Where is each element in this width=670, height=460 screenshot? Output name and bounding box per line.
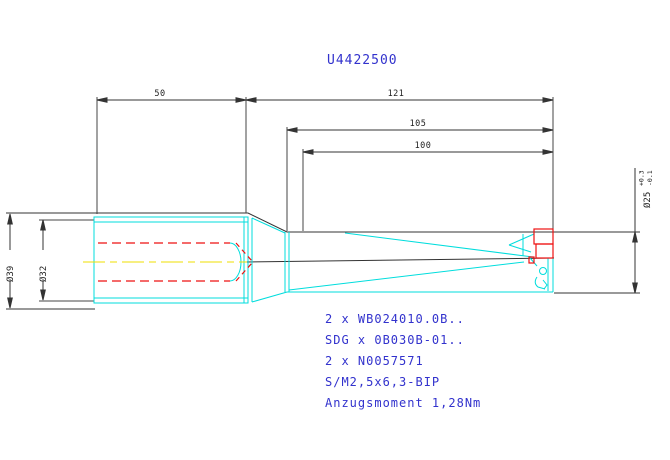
dim-shank-dia: Ø32 bbox=[38, 266, 49, 282]
cad-drawing-canvas: U4422500 2 x WB024010.0B.. SDG x 0B030B-… bbox=[0, 0, 670, 460]
svg-text:Ø25: Ø25 bbox=[642, 192, 653, 208]
dim-drill-dia: Ø25 +0.3 -0.1 bbox=[638, 170, 655, 208]
insert-outer bbox=[534, 229, 553, 244]
dimension-lines bbox=[8, 98, 638, 308]
dim-shank-length: 50 bbox=[154, 89, 165, 99]
svg-text:Ø39: Ø39 bbox=[5, 266, 16, 282]
note-inserts: 2 x WB024010.0B.. bbox=[325, 312, 465, 326]
dim-flute-length: 100 bbox=[415, 141, 432, 151]
note-torque: Anzugsmoment 1,28Nm bbox=[325, 396, 481, 410]
drawing-title: U4422500 bbox=[327, 53, 398, 68]
note-screw: S/M2,5x6,3-BIP bbox=[325, 375, 440, 389]
dim-length-105: 105 bbox=[410, 119, 427, 129]
dim-shank-outer-dia: Ø39 bbox=[5, 266, 16, 282]
note-spare-part: 2 x N0057571 bbox=[325, 354, 424, 368]
hidden-bore-and-inserts bbox=[98, 229, 553, 281]
note-grade: SDG x 0B030B-01.. bbox=[325, 333, 465, 347]
tool-geometry-cyan bbox=[94, 217, 553, 303]
dim-overall-length: 121 bbox=[388, 89, 405, 99]
technical-drawing: U4422500 2 x WB024010.0B.. SDG x 0B030B-… bbox=[0, 0, 670, 460]
dim-drill-dia-tol-plus: +0.3 bbox=[638, 170, 646, 186]
dim-drill-dia-tol-minus: -0.1 bbox=[646, 170, 654, 186]
tool-outline bbox=[6, 213, 640, 309]
insert-inner bbox=[536, 244, 553, 258]
svg-text:Ø32: Ø32 bbox=[38, 266, 49, 282]
